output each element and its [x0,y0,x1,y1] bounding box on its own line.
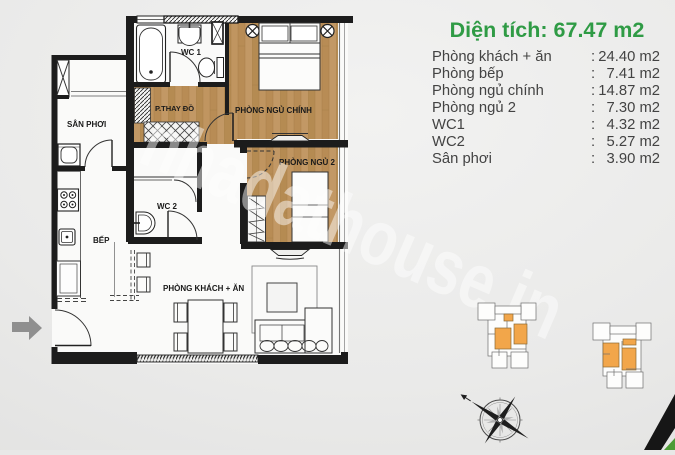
svg-text:PHÒNG NGỦ CHÍNH: PHÒNG NGỦ CHÍNH [235,106,312,115]
svg-text::: : [591,83,595,99]
svg-text:4.32 m2: 4.32 m2 [607,117,660,133]
svg-text:7.41 m2: 7.41 m2 [607,66,660,82]
svg-text::: : [591,134,595,150]
svg-text:BẾP: BẾP [93,235,110,245]
svg-text:Phòng khách + ăn: Phòng khách + ăn [432,49,552,65]
svg-text:WC1: WC1 [432,117,465,133]
svg-text:5.27 m2: 5.27 m2 [607,134,660,150]
svg-text:SÂN PHƠI: SÂN PHƠI [67,120,106,129]
svg-text:14.87 m2: 14.87 m2 [598,83,660,99]
svg-text:Phòng bếp: Phòng bếp [432,66,504,82]
svg-text::: : [591,100,595,116]
svg-text:3.90 m2: 3.90 m2 [607,151,660,167]
svg-text::: : [591,117,595,133]
svg-text:Phòng ngủ chính: Phòng ngủ chính [432,83,544,99]
svg-text::: : [591,49,595,65]
svg-text:Phòng ngủ 2: Phòng ngủ 2 [432,100,516,116]
svg-text::: : [591,66,595,82]
svg-text:Sân phơi: Sân phơi [432,151,492,167]
svg-text:WC 2: WC 2 [157,202,178,211]
svg-text:24.40 m2: 24.40 m2 [598,49,660,65]
svg-text:7.30 m2: 7.30 m2 [607,100,660,116]
svg-text:WC2: WC2 [432,134,465,150]
svg-text:PHÒNG KHÁCH + ĂN: PHÒNG KHÁCH + ĂN [163,284,244,293]
svg-text:Diện tích: 67.47 m2: Diện tích: 67.47 m2 [450,18,645,42]
svg-text::: : [591,151,595,167]
svg-text:WC 1: WC 1 [181,48,202,57]
